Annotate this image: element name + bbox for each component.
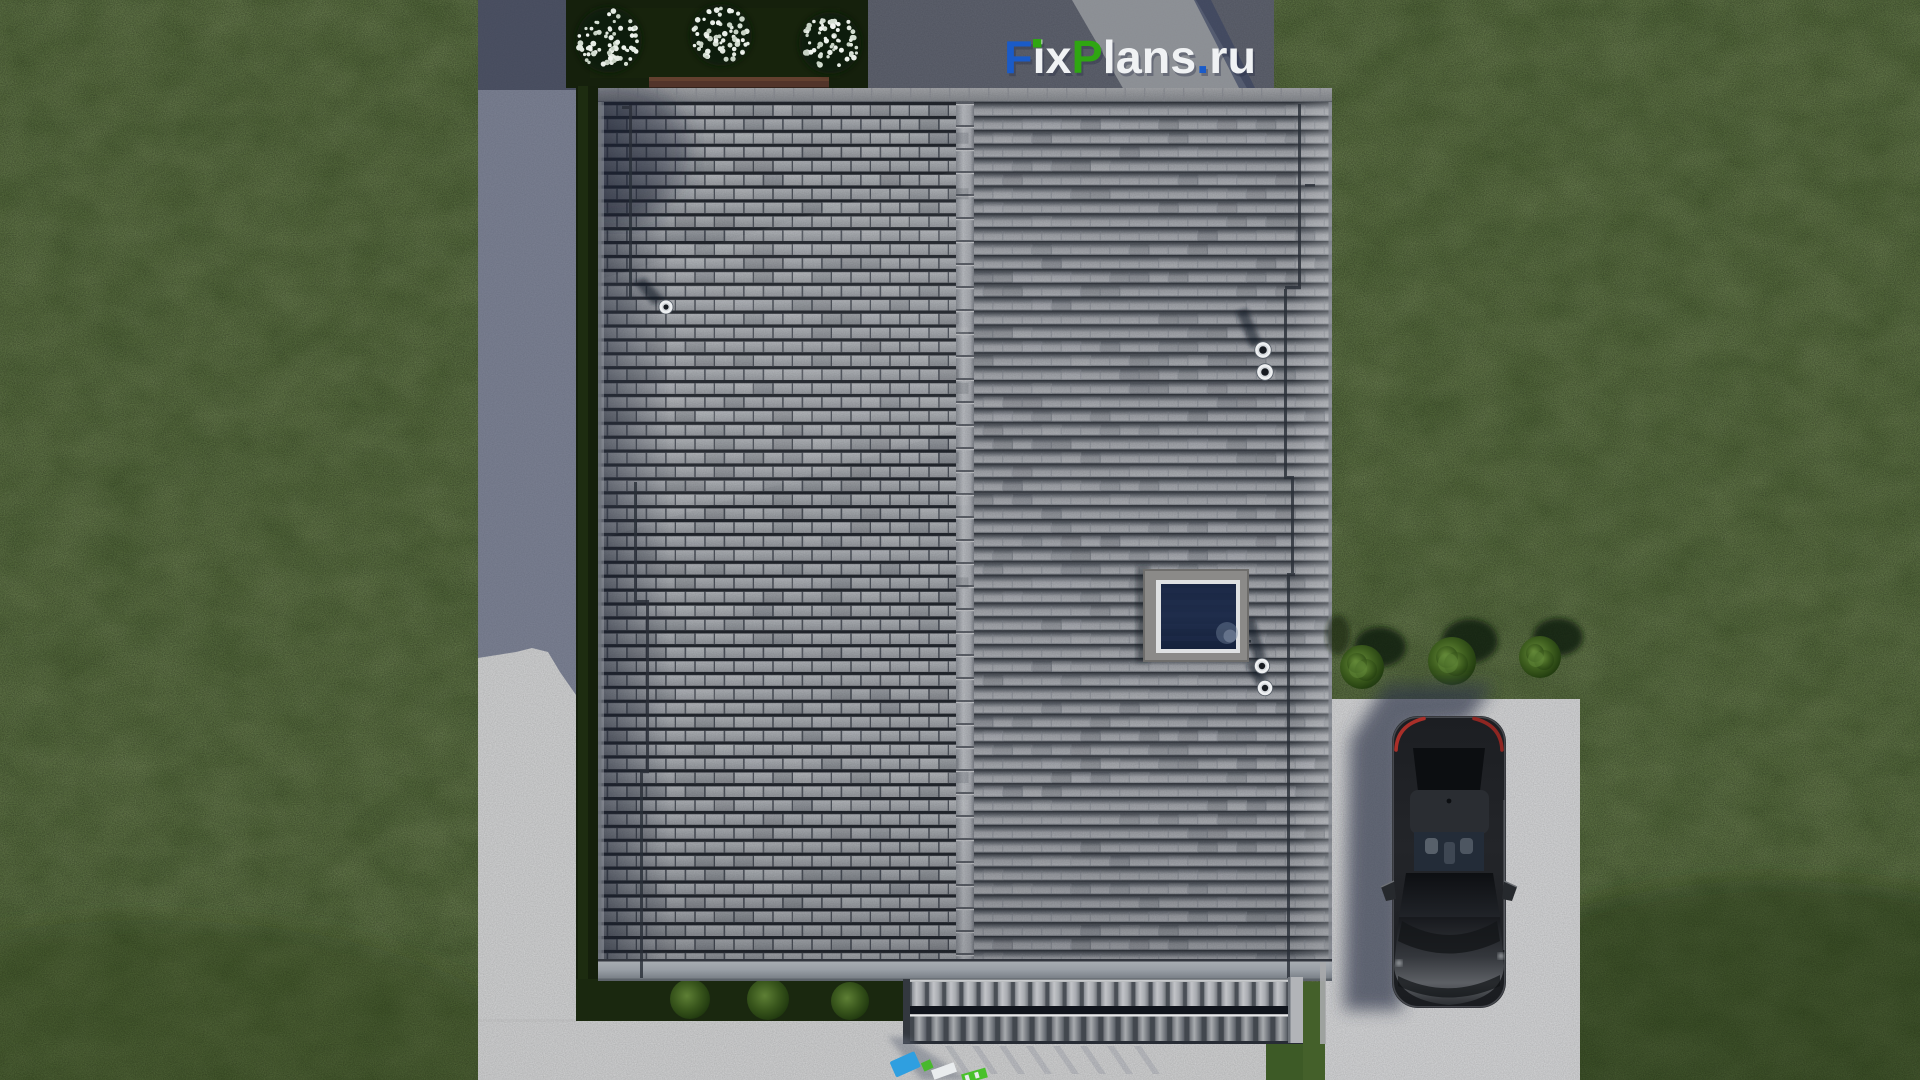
svg-text:FixPlans.ru: FixPlans.ru	[1004, 31, 1256, 83]
